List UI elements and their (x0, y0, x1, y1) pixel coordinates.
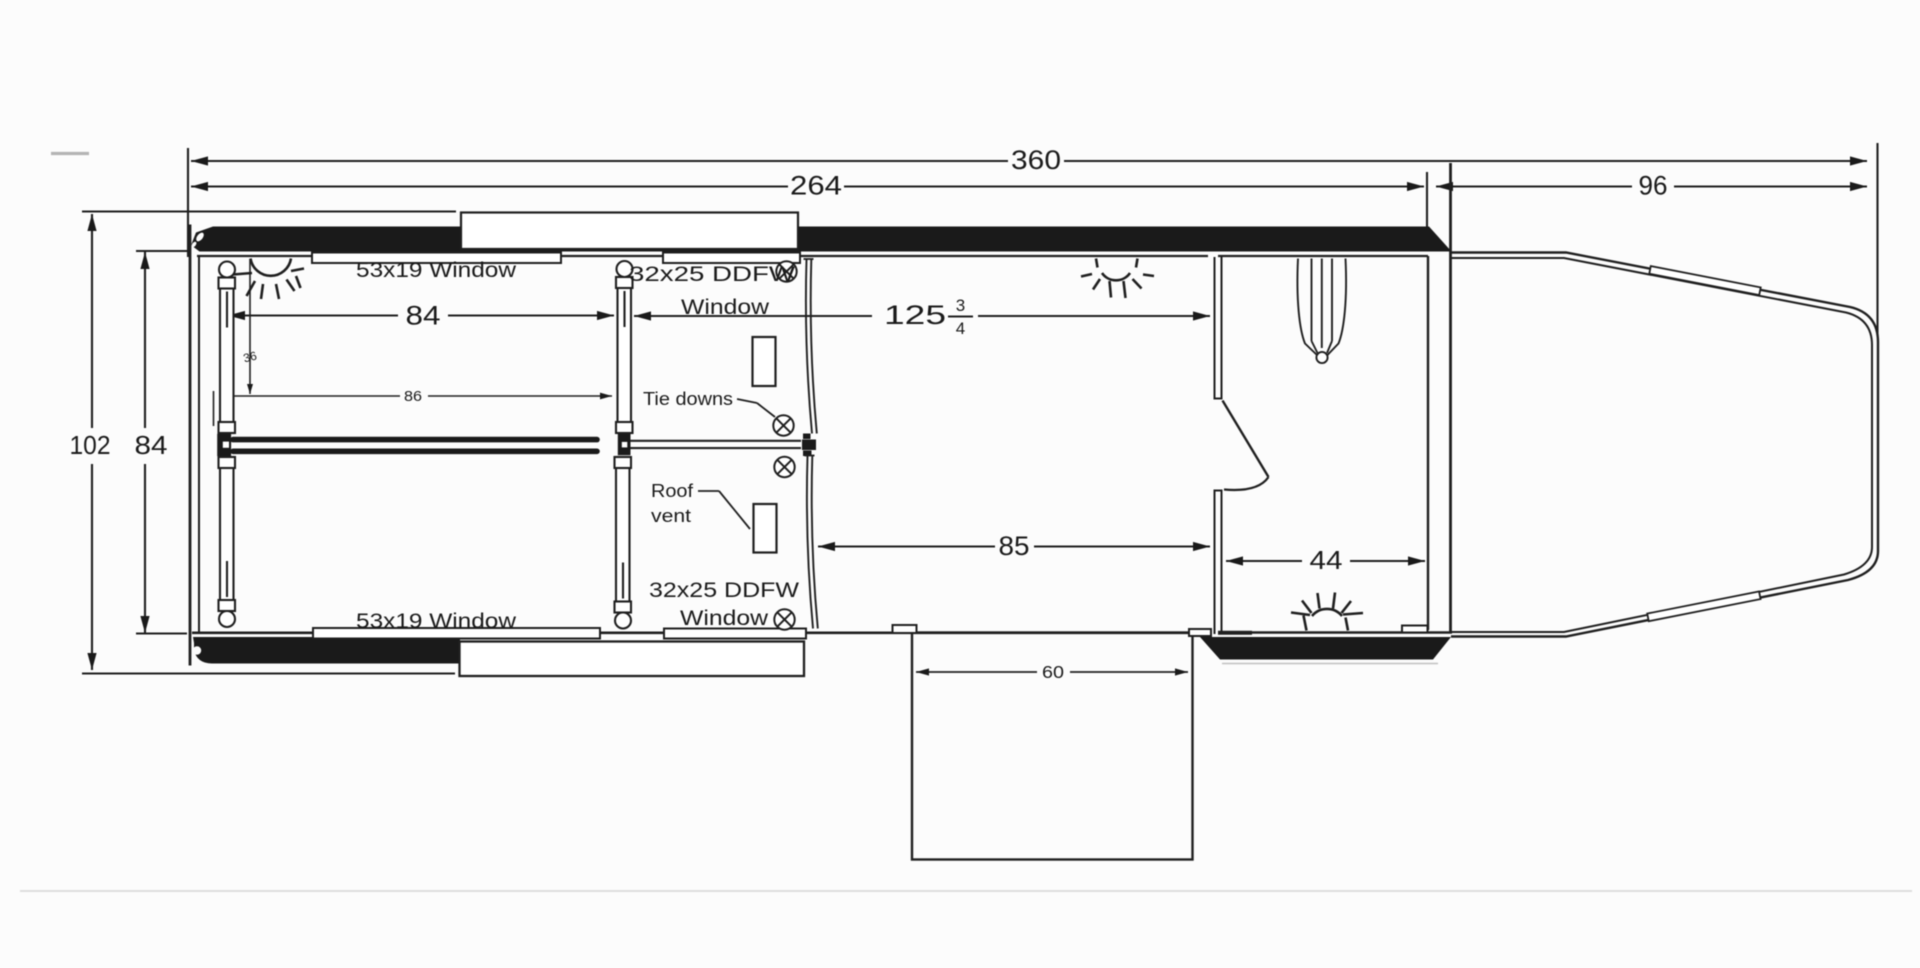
svg-text:125: 125 (884, 300, 946, 330)
svg-text:360: 360 (1011, 145, 1061, 175)
svg-text:96: 96 (1639, 171, 1668, 201)
svg-text:32x25 DDFW: 32x25 DDFW (629, 263, 795, 286)
svg-text:Window: Window (680, 607, 769, 630)
svg-text:53x19 Window: 53x19 Window (356, 610, 517, 633)
svg-text:36: 36 (242, 349, 259, 366)
svg-text:32x25 DDFW: 32x25 DDFW (649, 579, 799, 602)
svg-text:86: 86 (404, 389, 422, 405)
svg-text:Window: Window (681, 296, 770, 319)
svg-text:84: 84 (135, 430, 168, 460)
svg-text:102: 102 (70, 430, 111, 460)
svg-text:4: 4 (956, 319, 965, 338)
svg-text:84: 84 (406, 301, 441, 331)
svg-text:vent: vent (651, 506, 691, 526)
svg-text:Roof: Roof (651, 481, 694, 501)
svg-text:3: 3 (956, 296, 965, 315)
svg-text:85: 85 (999, 531, 1030, 561)
svg-text:Tie downs: Tie downs (643, 389, 733, 409)
svg-text:44: 44 (1310, 545, 1343, 575)
svg-text:264: 264 (790, 171, 842, 201)
svg-text:53x19 Window: 53x19 Window (356, 259, 517, 282)
svg-text:60: 60 (1042, 662, 1064, 682)
